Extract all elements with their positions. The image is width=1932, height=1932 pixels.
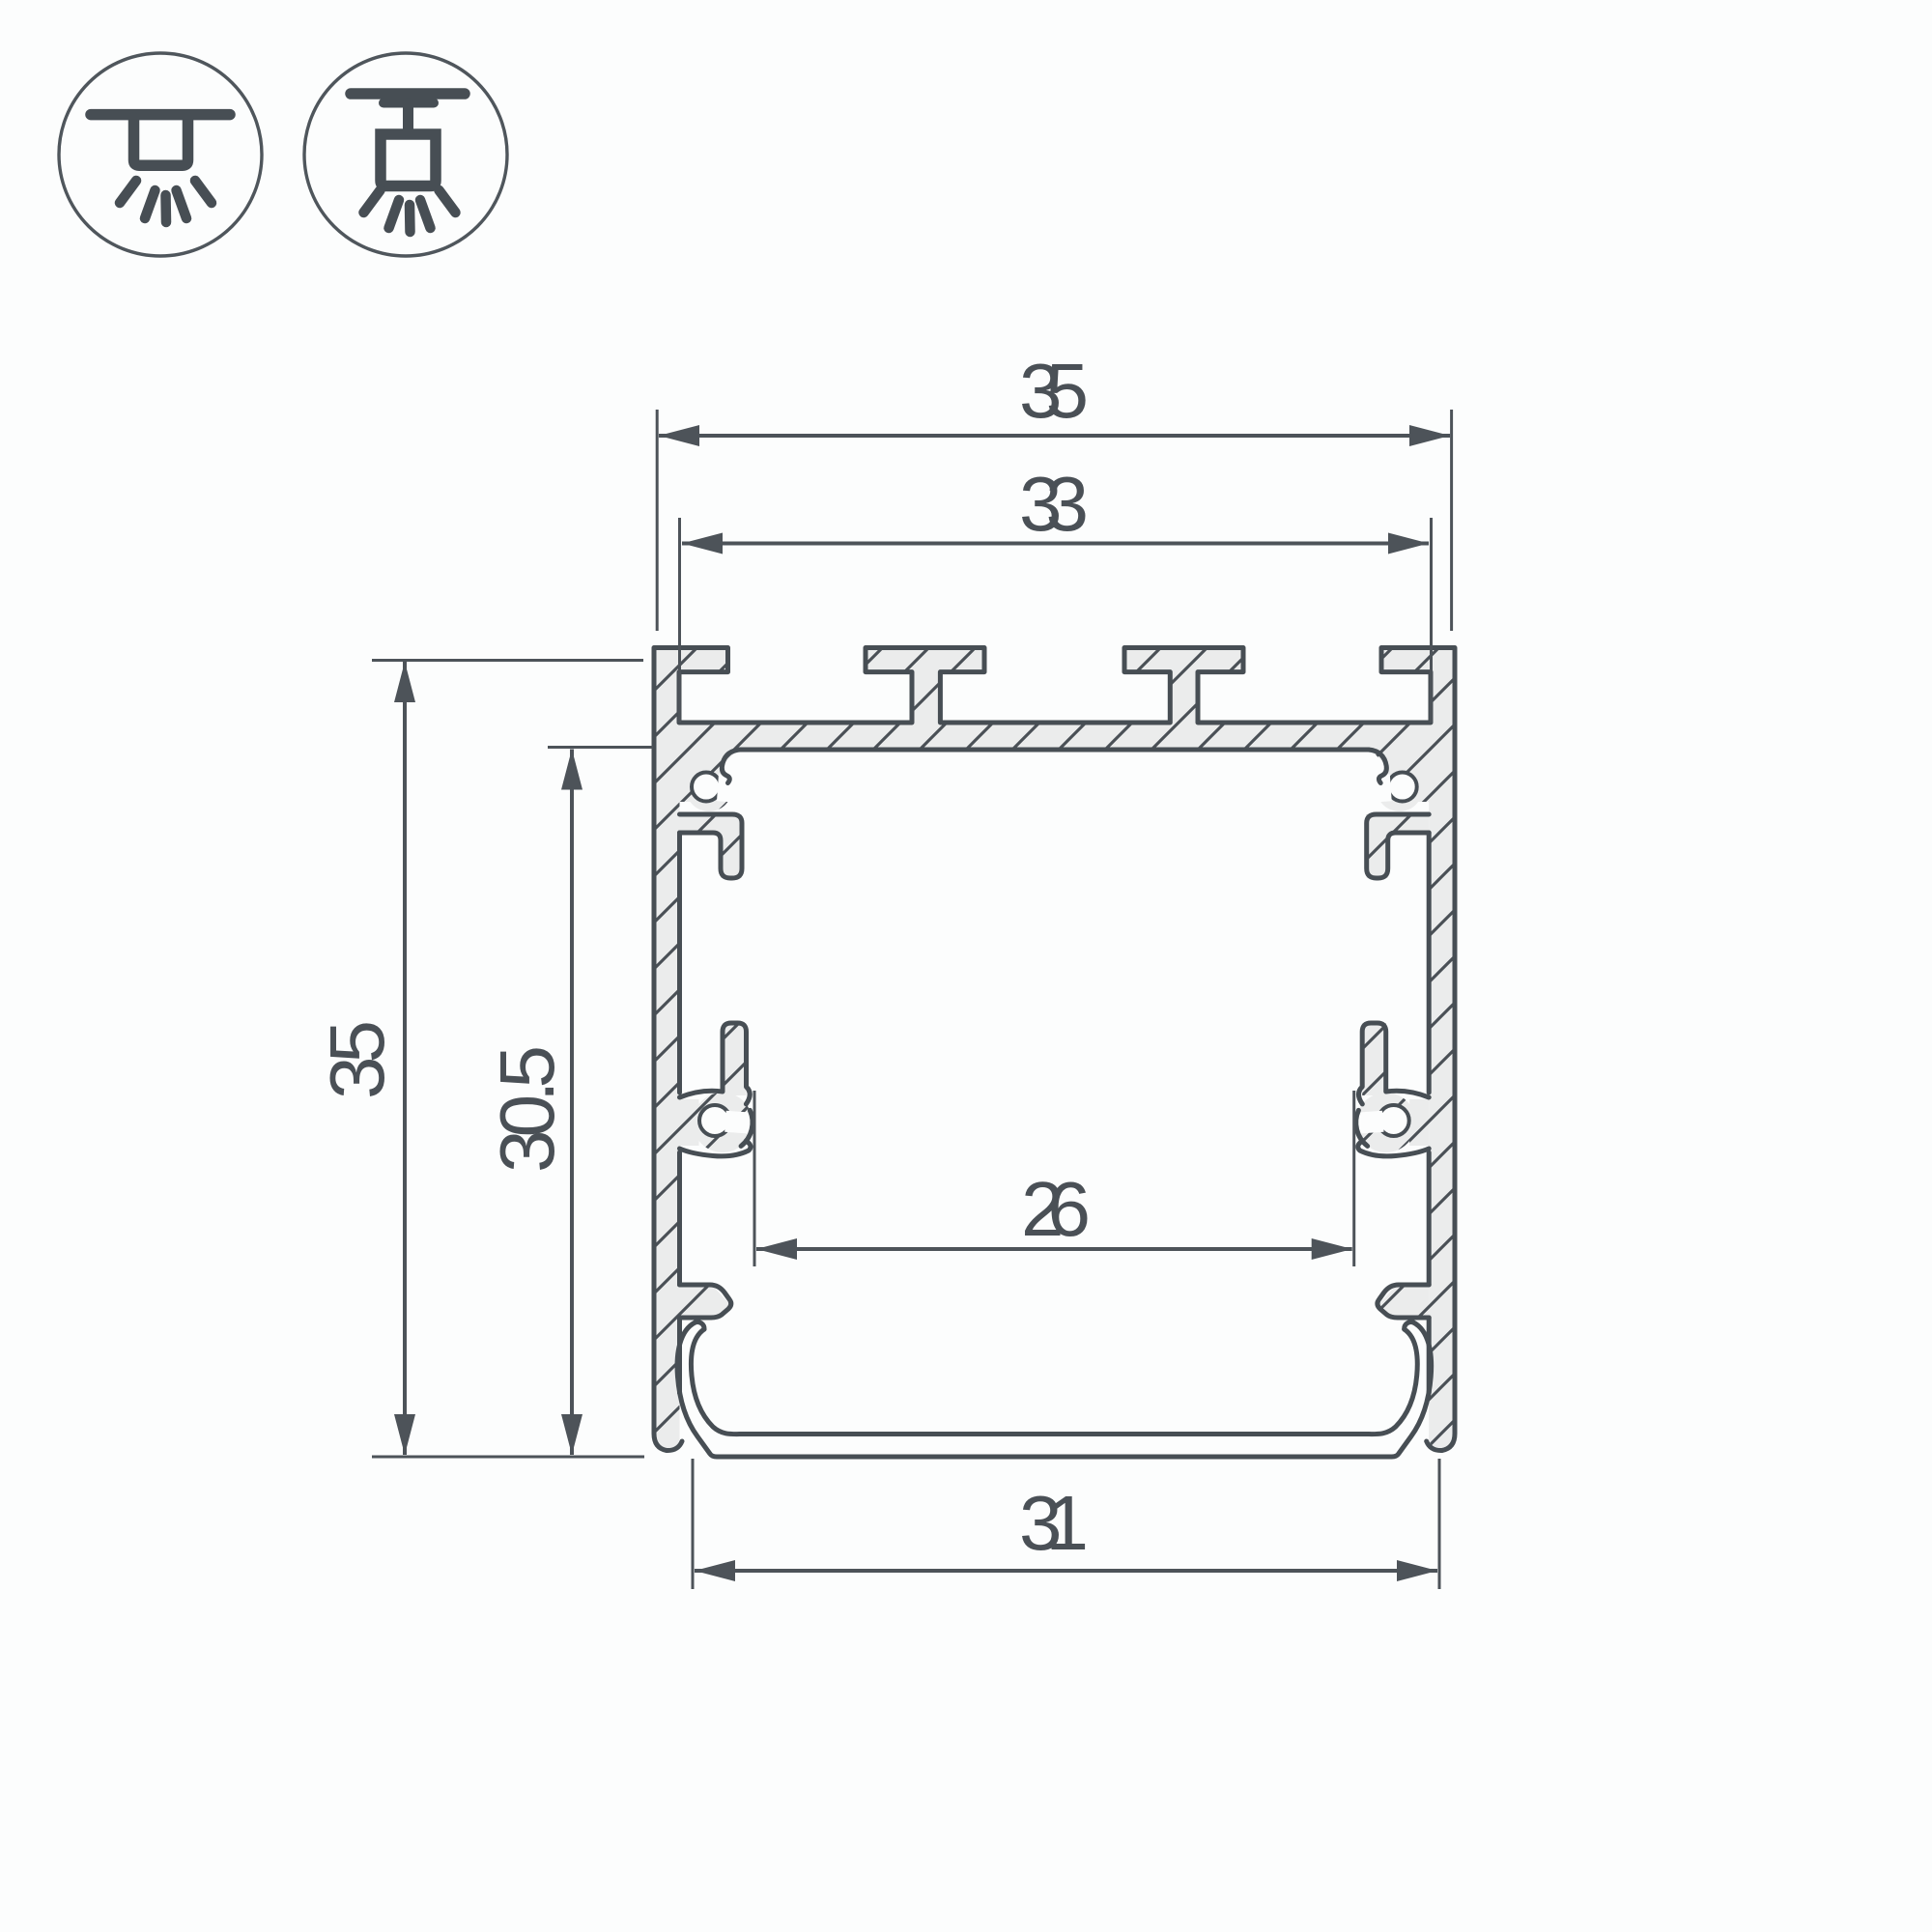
svg-text:35: 35 [1019, 348, 1089, 434]
svg-text:30.5: 30.5 [484, 1045, 570, 1173]
svg-text:33: 33 [1019, 461, 1089, 547]
svg-text:26: 26 [1021, 1166, 1091, 1252]
svg-text:31: 31 [1019, 1480, 1089, 1566]
svg-text:35: 35 [314, 1020, 400, 1099]
